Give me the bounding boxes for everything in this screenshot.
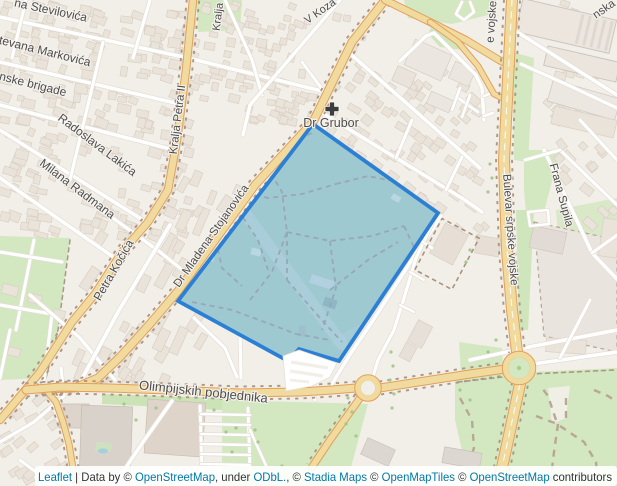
svg-text:Dr Grubor: Dr Grubor	[303, 116, 359, 130]
svg-text:Leaflet | Data by © OpenStreet: Leaflet | Data by © OpenStreetMap, under…	[38, 470, 612, 484]
